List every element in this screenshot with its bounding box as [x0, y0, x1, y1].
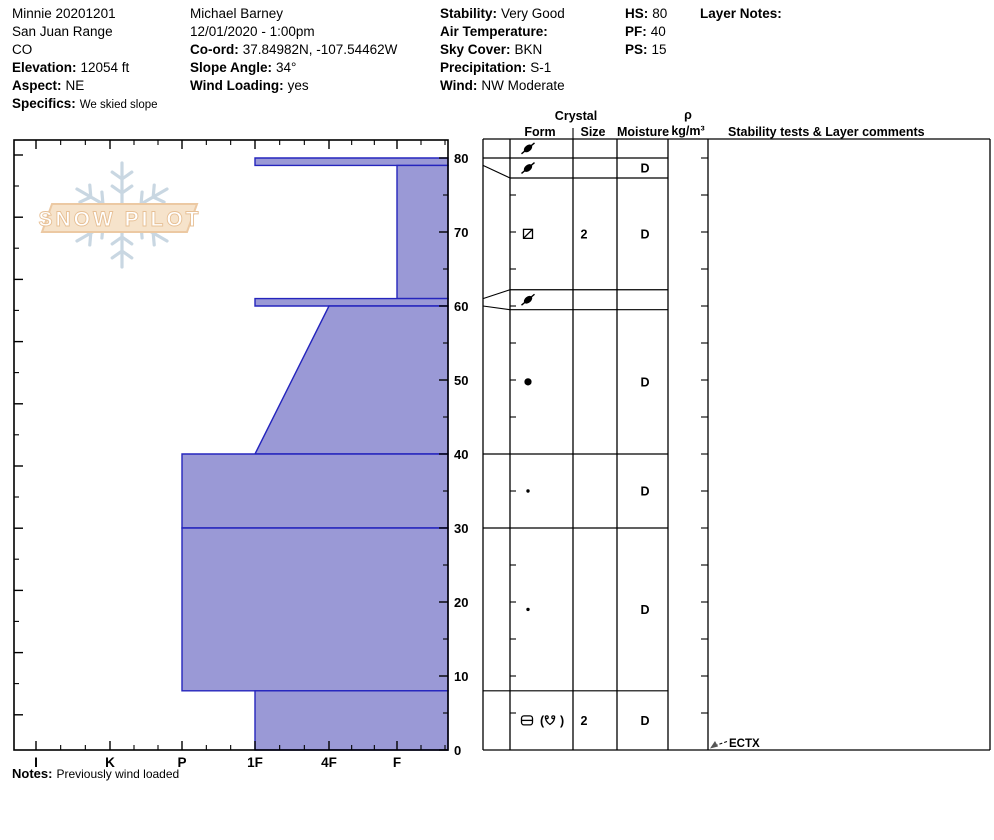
depth-label-40: 40	[454, 447, 468, 462]
depth-label-20: 20	[454, 595, 468, 610]
moisture-cell-5: D	[640, 485, 649, 499]
snow-layer-5	[182, 528, 448, 691]
moisture-cell-6: D	[640, 603, 649, 617]
depth-label-50: 50	[454, 373, 468, 388]
size-cell-2: 2	[581, 227, 588, 241]
snowpilot-profile-page: Minnie 20201201San Juan RangeCOElevation…	[0, 0, 994, 840]
notes-label: Notes:	[12, 766, 52, 781]
crystal-RG-small-icon	[526, 608, 529, 611]
snow-layer-4	[182, 454, 448, 528]
stability-arrowhead	[710, 741, 718, 749]
pit-notes: Notes:Previously wind loaded	[12, 766, 179, 781]
col-header-form: Form	[508, 125, 572, 139]
moisture-cell-2: D	[640, 227, 649, 241]
size-cell-7: 2	[581, 714, 588, 728]
thin-layer-leader	[483, 165, 510, 178]
snowflake-arm	[112, 163, 132, 207]
crystal-RG-small-icon	[526, 489, 529, 492]
snow-layer-0	[255, 158, 448, 165]
col-header-density-symbol: ρ	[668, 108, 708, 122]
dh-lobe	[545, 716, 548, 719]
thin-layer-leader	[483, 290, 510, 299]
paren-open: (	[540, 714, 545, 728]
col-header-crystal: Crystal	[538, 109, 614, 123]
moisture-cell-1: D	[640, 161, 649, 175]
crystal-DF-icon	[519, 292, 536, 308]
col-header-size: Size	[571, 125, 615, 139]
hardness-label-F: F	[393, 755, 401, 770]
hardness-label-4F: 4F	[321, 755, 337, 770]
depth-label-80: 80	[454, 151, 468, 166]
logo-text: SNOW PILOT	[39, 208, 202, 231]
thin-layer-leader	[483, 306, 510, 310]
snow-layer-6	[255, 691, 448, 750]
snow-layer-3	[255, 306, 448, 454]
col-header-stability-tests: Stability tests & Layer comments	[728, 125, 925, 139]
depth-label-70: 70	[454, 225, 468, 240]
stability-test-label: ECTX	[729, 738, 760, 750]
crystal-DF-icon	[519, 160, 536, 176]
df-slash	[521, 163, 534, 174]
dh-lobe	[552, 716, 555, 719]
hardness-label-1F: 1F	[247, 755, 263, 770]
depth-label-30: 30	[454, 521, 468, 536]
depth-label-0: 0	[454, 743, 461, 758]
depth-label-10: 10	[454, 669, 468, 684]
snow-layer-2	[255, 299, 448, 306]
df-slash	[521, 143, 534, 154]
stability-arrow-line	[717, 742, 727, 746]
moisture-cell-4: D	[640, 375, 649, 389]
crystal-RG-icon	[524, 378, 531, 385]
col-header-density-unit: kg/m³	[664, 124, 712, 138]
moisture-cell-7: D	[640, 714, 649, 728]
crystal-DH-icon	[545, 716, 554, 725]
depth-label-60: 60	[454, 299, 468, 314]
notes-value: Previously wind loaded	[56, 767, 179, 781]
crystal-DF-icon	[519, 141, 536, 157]
paren-close: )	[560, 714, 564, 728]
df-slash	[521, 294, 534, 305]
